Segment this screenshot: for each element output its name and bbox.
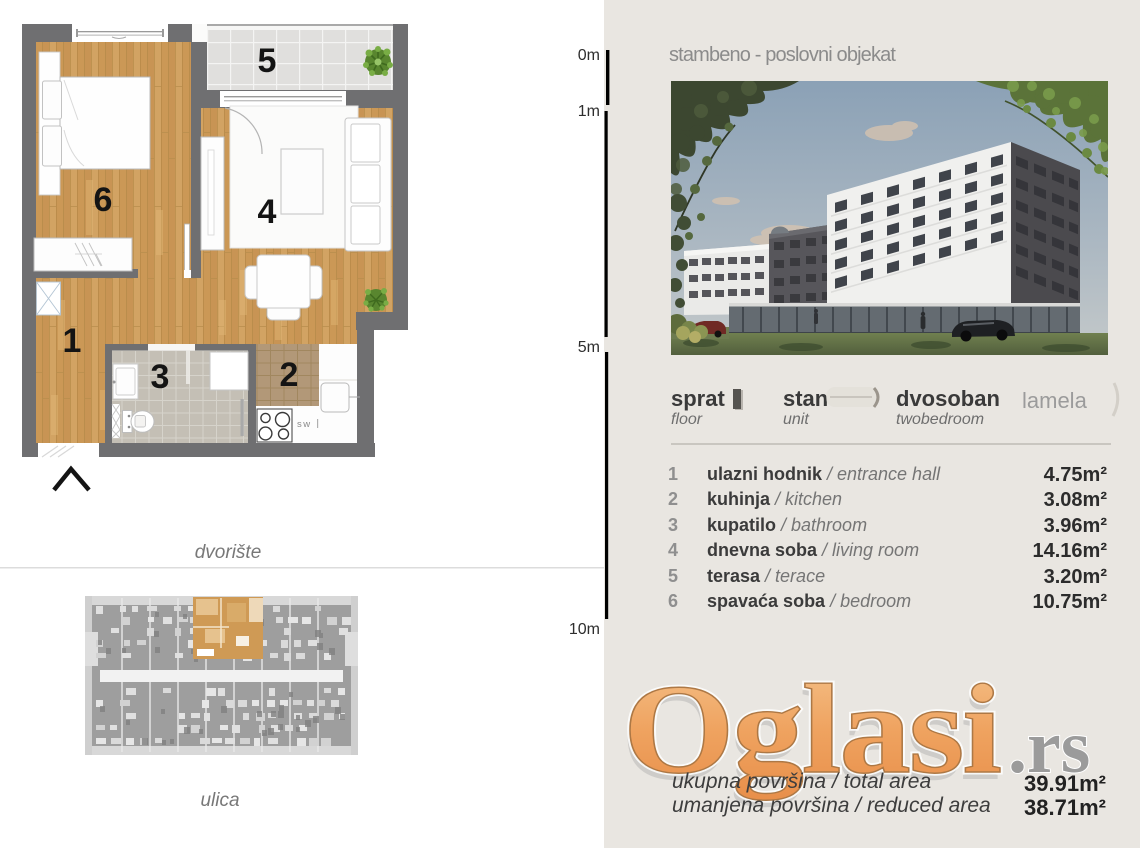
svg-text:4: 4 <box>258 193 277 231</box>
svg-text:1: 1 <box>63 322 82 360</box>
svg-text:ulica: ulica <box>200 790 239 811</box>
svg-text:dvorište: dvorište <box>195 542 262 563</box>
svg-text:10m: 10m <box>569 621 600 638</box>
svg-text:3: 3 <box>151 358 170 396</box>
svg-text:5: 5 <box>258 42 277 80</box>
svg-text:5m: 5m <box>578 339 600 356</box>
svg-text:6: 6 <box>94 181 113 219</box>
svg-text:2: 2 <box>280 356 299 394</box>
svg-text:sw: sw <box>297 419 312 430</box>
svg-text:0m: 0m <box>578 47 600 64</box>
svg-text:1m: 1m <box>578 103 600 120</box>
